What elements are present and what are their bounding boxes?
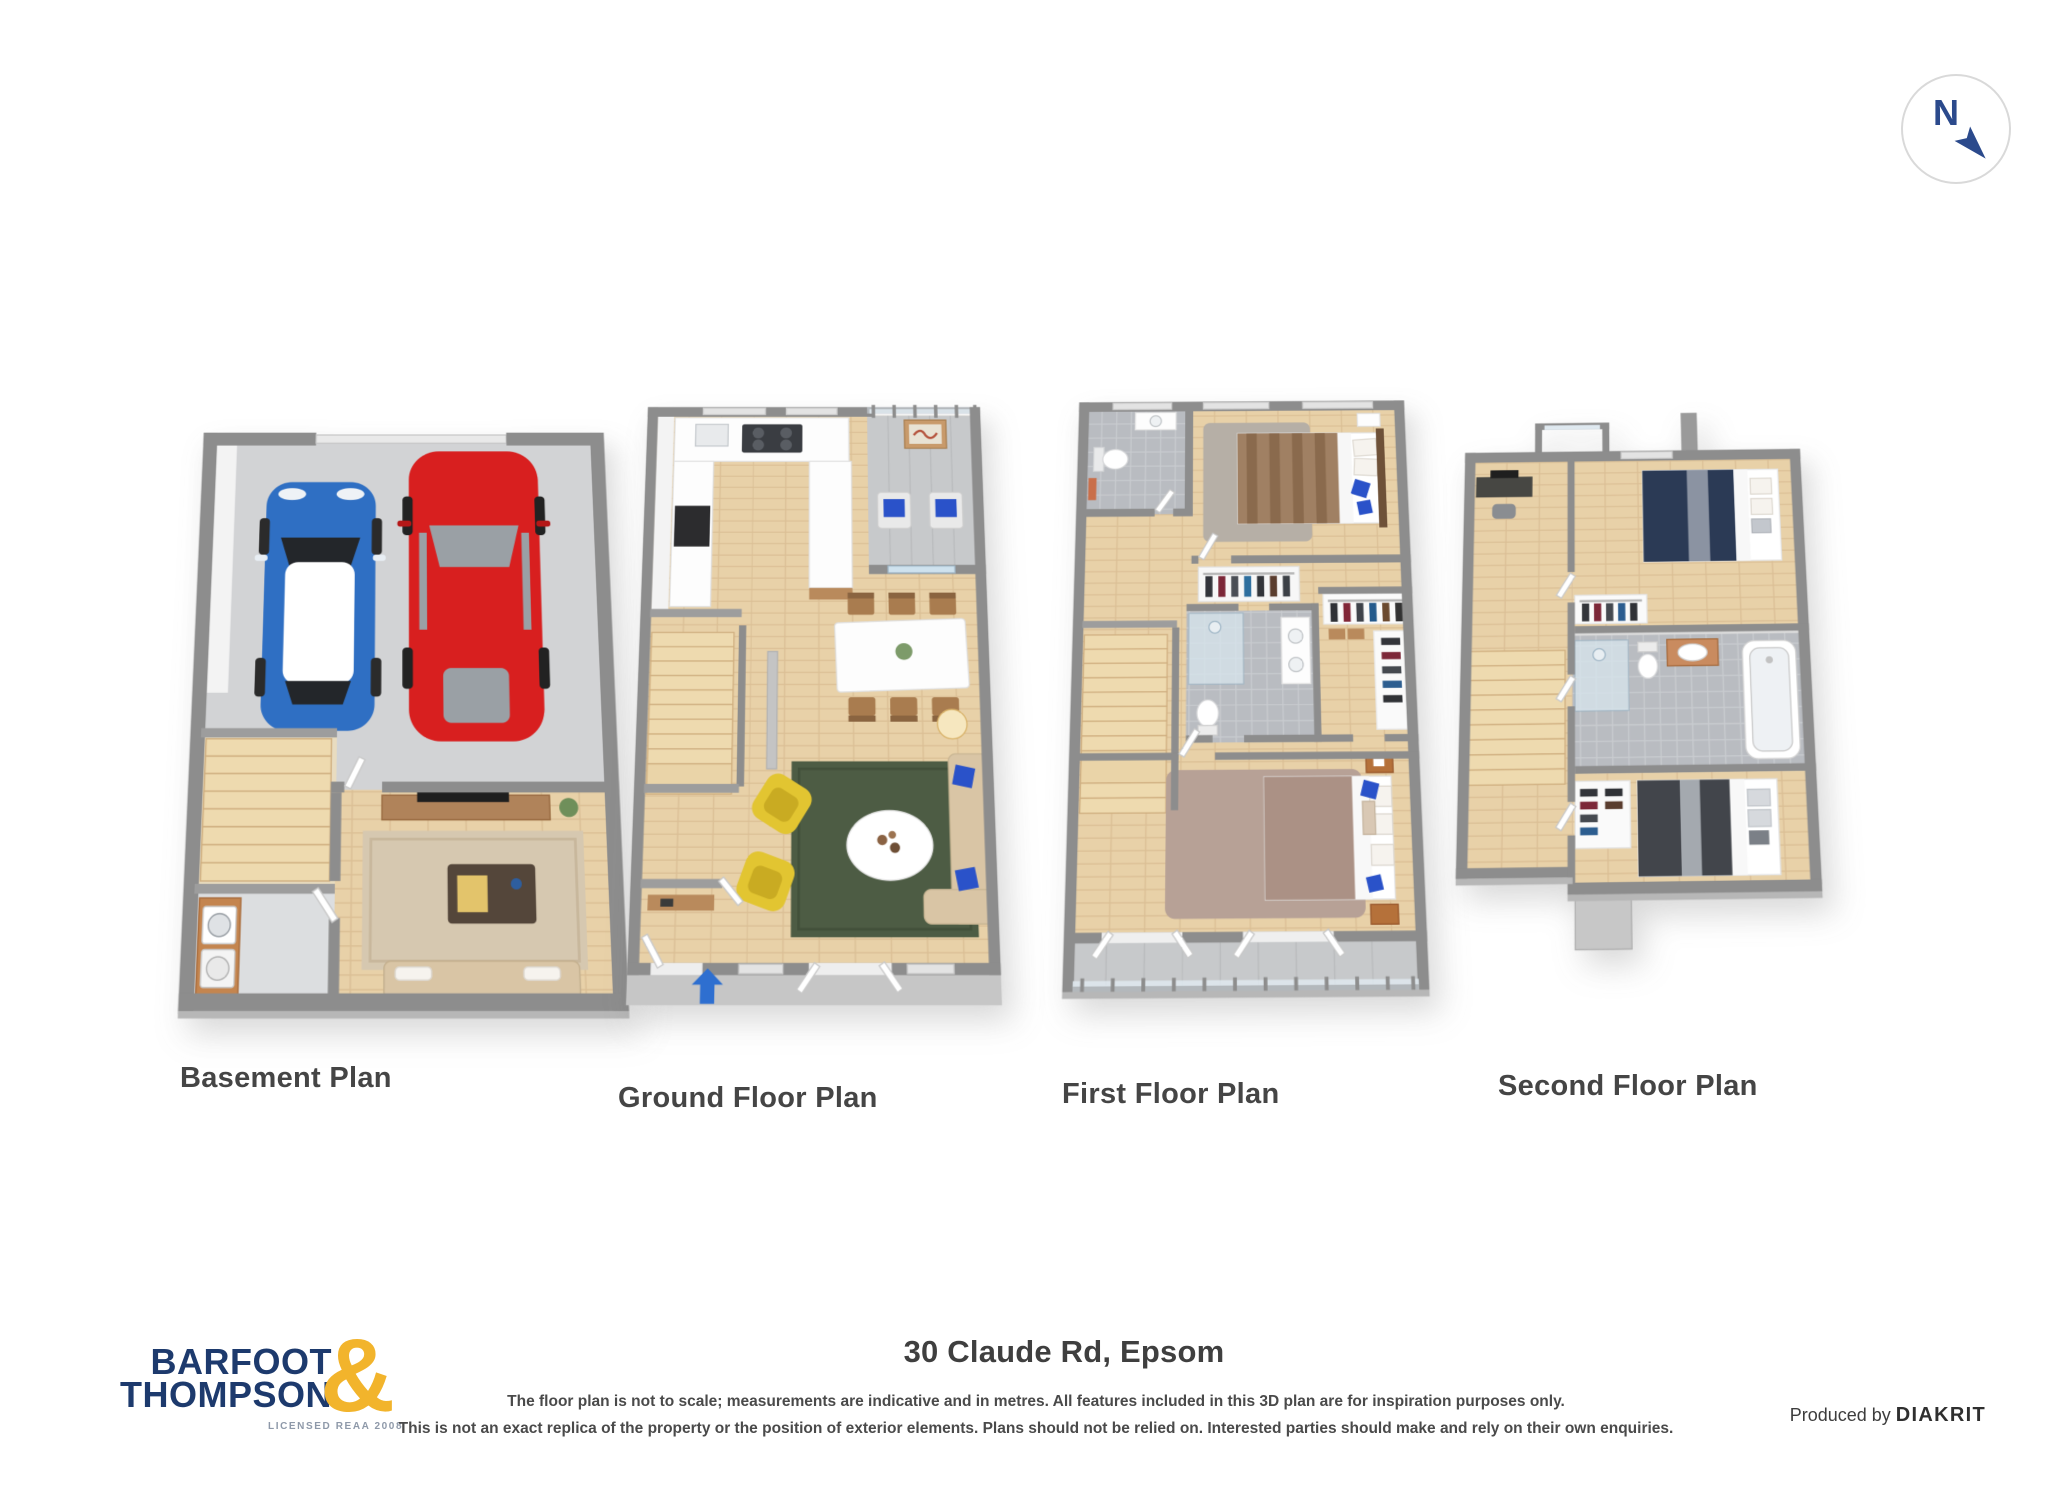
disclaimer: The floor plan is not to scale; measurem… <box>12 1388 2048 1442</box>
dining-chair <box>848 593 957 615</box>
first-plan-drawing <box>1054 394 1438 1011</box>
second-stairs <box>1468 650 1565 785</box>
floor-plan-sheet: N <box>0 0 2048 1494</box>
floor-lamp <box>937 709 967 739</box>
disclaimer-line2: This is not an exact replica of the prop… <box>12 1415 2048 1442</box>
compass-arrow-icon <box>1949 122 1989 162</box>
bedside-cube <box>1371 904 1399 924</box>
compass: N <box>1901 74 2011 184</box>
kitchen-sink <box>695 424 728 446</box>
ground-floor-plan <box>618 401 1010 1008</box>
desk-chair <box>1492 504 1516 519</box>
balcony-chair <box>877 492 911 528</box>
dining-set <box>834 593 970 722</box>
oven <box>674 506 711 547</box>
basement-plan-label: Basement Plan <box>180 1062 392 1095</box>
bedroom-one <box>1203 413 1388 542</box>
producer-prefix: Produced by <box>1790 1405 1891 1425</box>
laundry-appliances <box>195 898 241 999</box>
first-stairs <box>1080 635 1168 814</box>
ground-plan-drawing <box>618 401 1010 1008</box>
vanity <box>1281 617 1311 684</box>
property-address: 30 Claude Rd, Epsom <box>40 1334 2048 1370</box>
second-plan-label: Second Floor Plan <box>1498 1070 1758 1103</box>
desk <box>1476 477 1533 498</box>
toilet <box>1638 654 1658 679</box>
master-bedroom <box>1165 754 1399 926</box>
bedside-table <box>1357 413 1380 426</box>
red-car <box>397 451 557 741</box>
first-plan-label: First Floor Plan <box>1062 1078 1280 1111</box>
toilet <box>1197 700 1219 727</box>
ground-stairs <box>646 632 734 794</box>
disclaimer-line1: The floor plan is not to scale; measurem… <box>12 1388 2048 1415</box>
second-plan-drawing <box>1446 405 1834 971</box>
toilet <box>1103 449 1129 469</box>
cooktop <box>742 424 803 452</box>
basement-floor-plan <box>172 428 638 1020</box>
basement-stairs <box>200 739 331 881</box>
sliding-glass-door <box>888 566 955 573</box>
blue-car <box>249 482 386 731</box>
second-floor-plan <box>1446 405 1834 971</box>
wc-art <box>1088 478 1097 500</box>
wardrobe <box>1198 566 1299 601</box>
first-floor-plan <box>1054 394 1438 1011</box>
ground-plan-label: Ground Floor Plan <box>618 1082 878 1115</box>
basement-plan-drawing <box>172 428 638 1020</box>
divider-panel <box>767 651 778 768</box>
producer-credit: Produced by DIAKRIT <box>1790 1404 1986 1427</box>
producer-name: DIAKRIT <box>1896 1404 1986 1426</box>
round-coffee-table <box>847 811 934 881</box>
balcony-chair <box>929 492 963 528</box>
garage-door <box>316 435 506 443</box>
console-table <box>647 895 714 911</box>
monitor <box>1490 470 1518 478</box>
